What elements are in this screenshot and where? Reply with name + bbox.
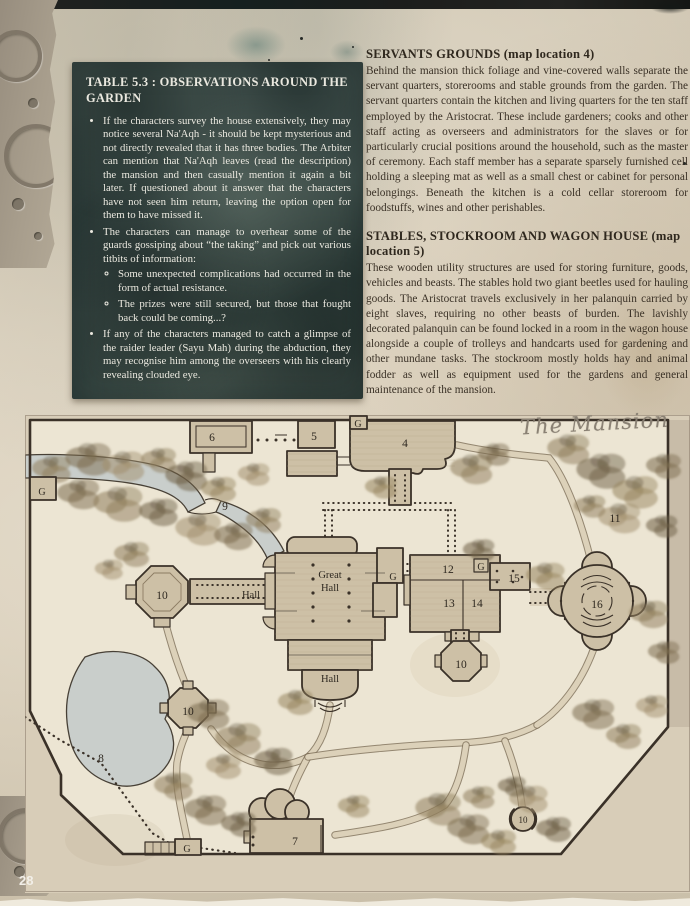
table-bullet: If any of the characters managed to catc… — [103, 328, 351, 382]
table-bullet-list: If the characters survey the house exten… — [86, 115, 351, 382]
map-label-hall-west: Hall — [242, 590, 260, 601]
map-label-great-hall: Hall — [321, 583, 339, 594]
stables-stockroom-section: STABLES, STOCKROOM AND WAGON HOUSE (map … — [366, 229, 688, 398]
map-label-gate-hall: G — [389, 572, 396, 583]
ink-speck — [268, 59, 270, 61]
gear-icon — [0, 30, 42, 82]
west-corridor — [190, 579, 276, 604]
torn-paper-edge — [0, 895, 690, 906]
map-label-13: 13 — [443, 598, 455, 610]
map-label-gate-south: G — [183, 844, 190, 855]
ornament-border-top — [0, 0, 58, 268]
map-label-7: 7 — [292, 836, 298, 848]
book-page: TABLE 5.3 : OBSERVATIONS AROUND THE GARD… — [0, 0, 690, 906]
ink-stain — [226, 26, 286, 64]
servants-grounds-section: SERVANTS GROUNDS (map location 4) Behind… — [366, 47, 688, 216]
rivet-icon — [12, 198, 24, 210]
map-stain — [65, 814, 165, 866]
map-label-8: 8 — [98, 753, 104, 765]
ink-speck — [300, 37, 303, 40]
map-label-4: 4 — [402, 438, 408, 450]
map-label-14: 14 — [471, 598, 483, 610]
map-label-gate-north: G — [354, 419, 361, 430]
top-border-ornament — [46, 0, 690, 9]
section-body: Behind the mansion thick foliage and vin… — [366, 64, 688, 216]
right-text-column: SERVANTS GROUNDS (map location 4) Behind… — [366, 47, 688, 411]
table-sub-bullet: The prizes were still secured, but those… — [118, 298, 351, 325]
rivet-icon — [34, 232, 42, 240]
table-bullet: The characters can manage to overhear so… — [103, 226, 351, 325]
map-label-5: 5 — [311, 431, 317, 443]
rivet-icon — [28, 98, 38, 108]
map-label-9: 9 — [222, 501, 228, 513]
map-label-gate-west: G — [38, 487, 45, 498]
table-bullet-text: The characters can manage to overhear so… — [103, 226, 351, 265]
map-label-15: 15 — [508, 573, 520, 585]
top-corner-stain — [650, 0, 690, 14]
map-label-10-east: 10 — [455, 659, 467, 671]
section-body: These wooden utility structures are used… — [366, 261, 688, 398]
gear-icon — [4, 124, 68, 188]
map-label-hall-south: Hall — [321, 674, 339, 685]
section-heading: SERVANTS GROUNDS (map location 4) — [366, 47, 688, 62]
map-label-10-pavilion: 10 — [519, 815, 529, 825]
map-label-12: 12 — [442, 564, 454, 576]
ink-stain — [330, 40, 364, 64]
page-number: 28 — [19, 873, 33, 888]
map-label-10-garden: 10 — [182, 706, 194, 718]
map-label-11: 11 — [609, 513, 620, 525]
mansion-garden-map: G 6 5 4 G 9 11 12 G 15 G Great Hall Hall… — [25, 415, 690, 893]
table-title: TABLE 5.3 : OBSERVATIONS AROUND THE GARD… — [86, 75, 351, 106]
table-sub-bullet: Some unexpected complications had occurr… — [118, 268, 351, 295]
map-label-10-west: 10 — [156, 590, 168, 602]
observations-table-box: TABLE 5.3 : OBSERVATIONS AROUND THE GARD… — [72, 62, 363, 399]
table-bullet: If the characters survey the house exten… — [103, 115, 351, 223]
map-label-16: 16 — [591, 599, 603, 611]
table-sub-list: Some unexpected complications had occurr… — [103, 268, 351, 325]
ink-speck — [352, 46, 354, 48]
map-label-great-hall: Great — [318, 570, 341, 581]
map-label-gate-court: G — [477, 562, 484, 573]
section-heading: STABLES, STOCKROOM AND WAGON HOUSE (map … — [366, 229, 688, 259]
map-label-6: 6 — [209, 432, 215, 444]
